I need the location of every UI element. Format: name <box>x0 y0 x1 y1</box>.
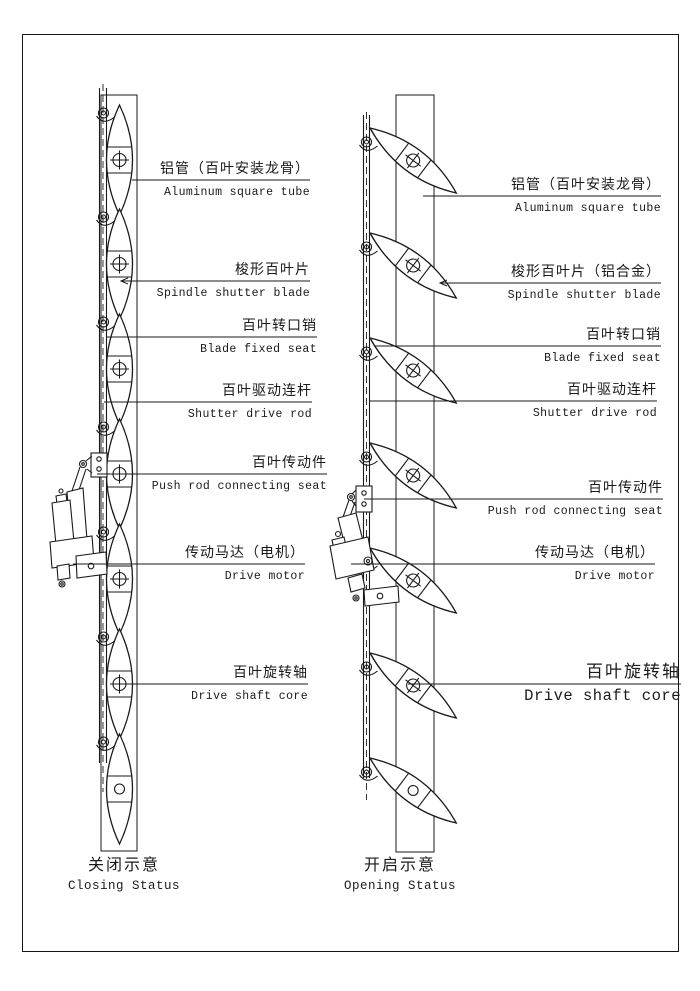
label-left-drive-shaft-core: 百叶旋转轴 Drive shaft core <box>191 665 308 704</box>
label-en-text: Blade fixed seat <box>200 342 317 357</box>
blade-pivots-right <box>360 137 378 780</box>
caption-opening-status: 开启示意 Opening Status <box>344 856 456 895</box>
label-zh-text: 百叶驱动连杆 <box>188 383 312 401</box>
blades-right <box>363 118 464 832</box>
label-right-blade-fixed-seat: 百叶转口销 Blade fixed seat <box>544 327 661 366</box>
label-left-spindle-blade: 梭形百叶片 Spindle shutter blade <box>157 262 310 301</box>
label-en-text: Aluminum square tube <box>511 201 661 216</box>
label-zh-text: 梭形百叶片（铝合金） <box>508 264 661 282</box>
label-right-aluminum-tube: 铝管（百叶安装龙骨） Aluminum square tube <box>511 177 661 216</box>
label-left-blade-fixed-seat: 百叶转口销 Blade fixed seat <box>200 318 317 357</box>
caption-closing-status: 关闭示意 Closing Status <box>68 856 180 895</box>
label-en-text: Spindle shutter blade <box>508 288 661 303</box>
label-en-text: Push rod connecting seat <box>488 504 663 519</box>
label-zh-text: 传动马达（电机） <box>185 545 305 563</box>
label-en-text: Drive shaft core <box>191 689 308 704</box>
open-shutter-drawing <box>330 95 463 852</box>
label-en-text: Drive shaft core <box>524 689 681 704</box>
label-right-spindle-blade: 梭形百叶片（铝合金） Spindle shutter blade <box>508 264 661 303</box>
caption-zh-text: 开启示意 <box>344 856 456 876</box>
label-en-text: Spindle shutter blade <box>157 286 310 301</box>
caption-zh-text: 关闭示意 <box>68 856 180 876</box>
shutter-diagram-page: { "page": { "background": "#ffffff", "li… <box>0 0 700 991</box>
label-en-text: Shutter drive rod <box>533 406 657 421</box>
caption-en-text: Closing Status <box>68 878 180 895</box>
label-left-shutter-drive-rod: 百叶驱动连杆 Shutter drive rod <box>188 383 312 422</box>
caption-en-text: Opening Status <box>344 878 456 895</box>
label-zh-text: 百叶旋转轴 <box>524 661 681 683</box>
label-zh-text: 百叶驱动连杆 <box>533 382 657 400</box>
label-en-text: Push rod connecting seat <box>152 479 327 494</box>
label-en-text: Drive motor <box>185 569 305 584</box>
label-zh-text: 百叶传动件 <box>488 480 663 498</box>
leader-lines <box>73 180 681 684</box>
label-en-text: Drive motor <box>535 569 655 584</box>
label-zh-text: 百叶传动件 <box>152 455 327 473</box>
drive-motor-left <box>50 453 107 587</box>
label-left-drive-motor: 传动马达（电机） Drive motor <box>185 545 305 584</box>
drive-motor-right <box>330 486 399 606</box>
closed-shutter-drawing <box>50 84 137 851</box>
label-right-drive-shaft-core: 百叶旋转轴 Drive shaft core <box>524 661 681 704</box>
label-zh-text: 百叶旋转轴 <box>191 665 308 683</box>
label-zh-text: 铝管（百叶安装龙骨） <box>160 161 310 179</box>
label-en-text: Blade fixed seat <box>544 351 661 366</box>
label-right-shutter-drive-rod: 百叶驱动连杆 Shutter drive rod <box>533 382 657 421</box>
label-en-text: Shutter drive rod <box>188 407 312 422</box>
label-zh-text: 百叶转口销 <box>200 318 317 336</box>
label-zh-text: 传动马达（电机） <box>535 545 655 563</box>
label-right-drive-motor: 传动马达（电机） Drive motor <box>535 545 655 584</box>
label-zh-text: 铝管（百叶安装龙骨） <box>511 177 661 195</box>
label-zh-text: 梭形百叶片 <box>157 262 310 280</box>
label-right-connecting-seat: 百叶传动件 Push rod connecting seat <box>488 480 663 519</box>
label-left-aluminum-tube: 铝管（百叶安装龙骨） Aluminum square tube <box>160 161 310 200</box>
label-left-connecting-seat: 百叶传动件 Push rod connecting seat <box>152 455 327 494</box>
label-en-text: Aluminum square tube <box>160 185 310 200</box>
label-zh-text: 百叶转口销 <box>544 327 661 345</box>
